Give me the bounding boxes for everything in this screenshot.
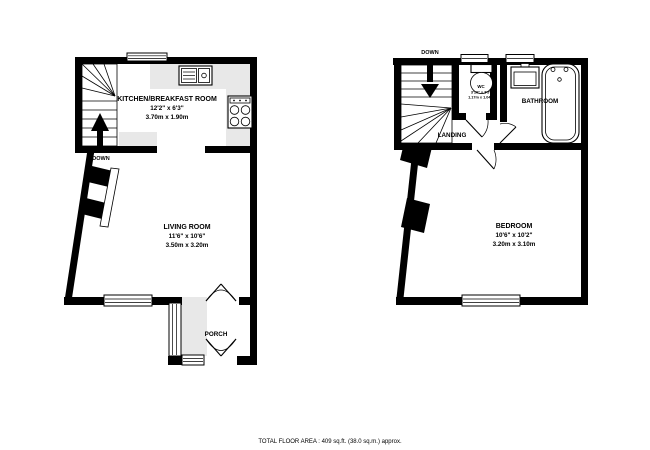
porch-label: PORCH (205, 331, 228, 338)
bathroom-label: BATHROOM (522, 98, 559, 105)
living-room-size-imperial: 11'6" x 10'6" (169, 233, 206, 240)
wc-size-metric: 1.17m x 1.04m (468, 96, 494, 100)
bathroom-window (506, 55, 534, 63)
landing-label: LANDING (438, 132, 467, 139)
ground-floor-stairs (82, 64, 117, 152)
bedroom-label: BEDROOM (496, 223, 533, 230)
bedroom-window (462, 295, 520, 306)
porch-side-window (169, 303, 181, 356)
kitchen-label: KITCHEN/BREAKFAST ROOM (117, 96, 217, 103)
bathroom-door (500, 123, 516, 143)
living-room-window (104, 295, 152, 306)
porch-floor (181, 297, 207, 356)
kitchen-sink-icon (179, 66, 212, 85)
stairs-down-arrow (421, 65, 439, 98)
floorplan-canvas: KITCHEN/BREAKFAST ROOM 12'2" x 6'3" 3.70… (0, 0, 650, 450)
floorplan-page: KITCHEN/BREAKFAST ROOM 12'2" x 6'3" 3.70… (0, 0, 650, 450)
kitchen-size-imperial: 12'2" x 6'3" (150, 105, 183, 112)
kitchen-size-metric: 3.70m x 1.90m (146, 114, 189, 121)
porch-inner-door (206, 284, 236, 301)
bedroom-door (477, 150, 496, 169)
bedroom-size-imperial: 10'6" x 10'2" (496, 232, 533, 239)
living-room-angled-wall (68, 150, 91, 301)
bedroom-size-metric: 3.20m x 3.10m (493, 241, 536, 248)
first-stairs-label: DOWN (421, 50, 438, 56)
porch-front-door (206, 339, 236, 356)
wc-door (466, 120, 488, 137)
living-room-size-metric: 3.50m x 3.20m (166, 242, 209, 249)
wc-label: WC (477, 84, 485, 89)
first-floor-plan: DOWN WC 3'10" x 3'5" 1.17m x 1.04m BATHR… (393, 50, 588, 306)
basin-icon (511, 64, 539, 89)
porch-front-window (182, 355, 204, 365)
stove-icon (228, 96, 252, 128)
kitchen-window (127, 53, 167, 61)
living-room-label: LIVING ROOM (163, 224, 210, 231)
wc-size-imperial: 3'10" x 3'5" (471, 91, 491, 95)
wc-window (461, 55, 488, 63)
ground-stairs-label: DOWN (92, 156, 109, 162)
ground-floor-plan: KITCHEN/BREAKFAST ROOM 12'2" x 6'3" 3.70… (64, 53, 257, 365)
total-floor-area-text: TOTAL FLOOR AREA : 409 sq.ft. (38.0 sq.m… (258, 439, 402, 445)
toilet-icon (471, 65, 493, 94)
